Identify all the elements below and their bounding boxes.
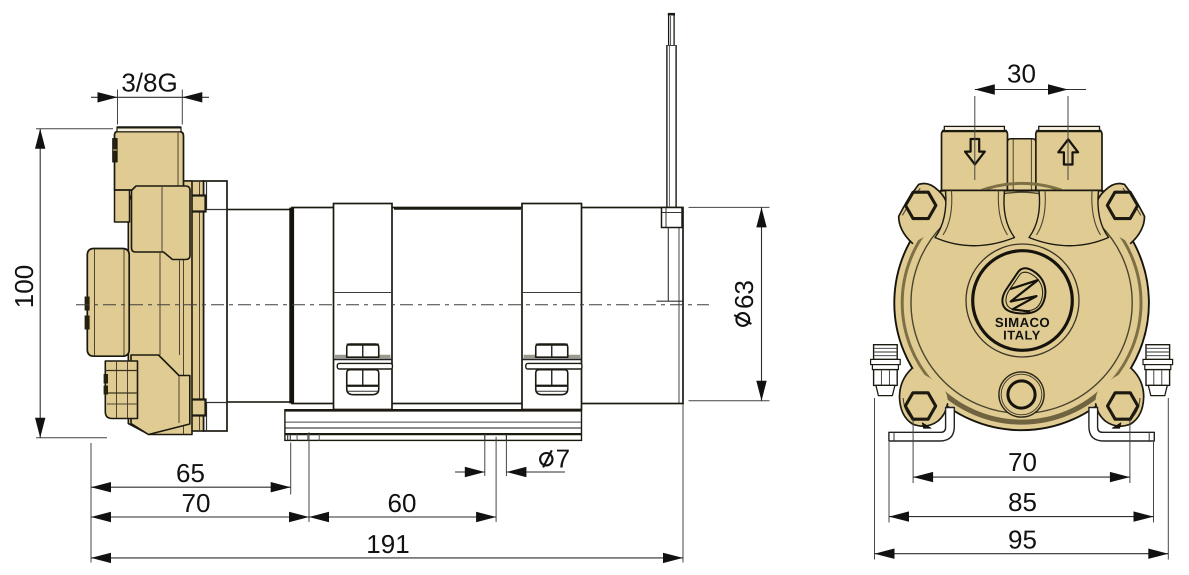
svg-text:30: 30 xyxy=(1007,59,1036,89)
svg-text:70: 70 xyxy=(1008,447,1037,477)
svg-text:85: 85 xyxy=(1008,487,1037,517)
svg-text:63: 63 xyxy=(729,280,759,309)
svg-text:191: 191 xyxy=(366,529,409,559)
svg-text:ITALY: ITALY xyxy=(1003,328,1041,343)
svg-text:3/8G: 3/8G xyxy=(121,68,177,98)
svg-text:100: 100 xyxy=(9,265,39,308)
svg-text:95: 95 xyxy=(1008,525,1037,555)
svg-text:70: 70 xyxy=(182,488,211,518)
svg-text:60: 60 xyxy=(388,488,417,518)
svg-text:7: 7 xyxy=(556,444,570,474)
svg-text:65: 65 xyxy=(176,458,205,488)
